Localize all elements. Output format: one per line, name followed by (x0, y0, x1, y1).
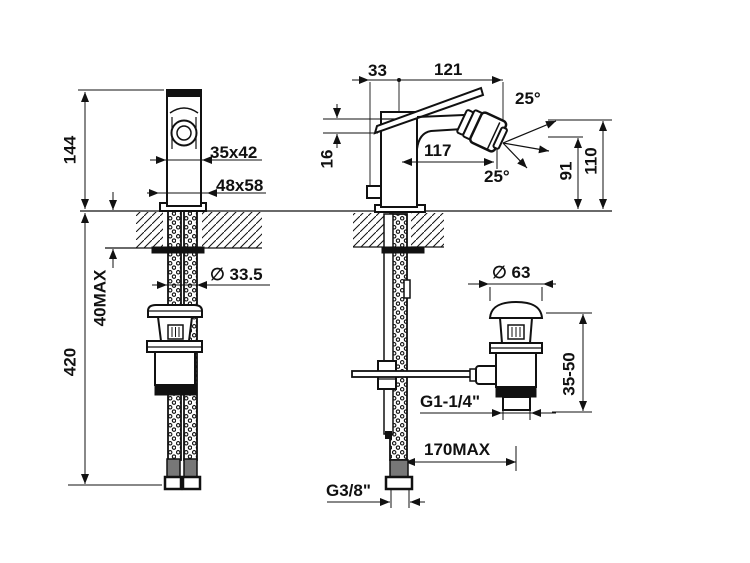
popup-linkage (352, 361, 498, 389)
dim-label-front-height: 144 (62, 136, 79, 164)
dim-front-height (78, 90, 164, 209)
dim-label-spray-angle-down: 25° (484, 168, 510, 185)
side-hose-fitting (386, 460, 412, 489)
dim-label-waste-diameter: ∅ 63 (492, 264, 530, 281)
drawing-linework (0, 0, 750, 563)
dim-side-spout-lip (323, 104, 381, 148)
dim-waste-diameter (468, 284, 556, 301)
dim-label-front-shank-diameter: ∅ 33.5 (210, 266, 263, 283)
dim-label-spray-angle-up: 25° (515, 90, 541, 107)
dim-label-waste-clamp-range: 35-50 (561, 352, 578, 395)
dim-label-front-deck-thickness: 40MAX (92, 270, 109, 327)
side-locknut (382, 247, 424, 253)
dim-spray-angles (503, 121, 556, 168)
dim-label-side-total-height: 110 (583, 147, 600, 174)
dim-label-side-spout-lip: 16 (319, 150, 336, 169)
popup-knob (367, 186, 381, 198)
spray-head (455, 105, 510, 154)
dim-label-side-spout-reach: 117 (424, 142, 451, 159)
front-locknut (152, 247, 204, 253)
front-hose-fittings (165, 459, 200, 489)
dim-label-linkage-reach: 170MAX (424, 441, 490, 458)
dim-label-side-handle-reach: 121 (434, 61, 462, 78)
dim-label-side-handle-back: 33 (368, 62, 387, 79)
popup-rod-tip (385, 431, 392, 439)
linkage-rod (352, 371, 479, 377)
dim-label-hose-thread: G3/8" (326, 482, 371, 499)
dim-label-front-body-section: 35x42 (210, 144, 257, 161)
side-popup-waste (490, 302, 542, 410)
dim-label-front-hose-length: 420 (62, 348, 79, 376)
dim-label-waste-thread: G1-1/4" (420, 393, 480, 410)
front-handle-cap (167, 90, 201, 96)
dim-label-side-outlet-height: 91 (558, 162, 575, 181)
technical-drawing-canvas: 144 420 40MAX 35x42 48x58 ∅ 33.5 33 121 … (0, 0, 750, 563)
dim-label-front-base-section: 48x58 (216, 177, 263, 194)
